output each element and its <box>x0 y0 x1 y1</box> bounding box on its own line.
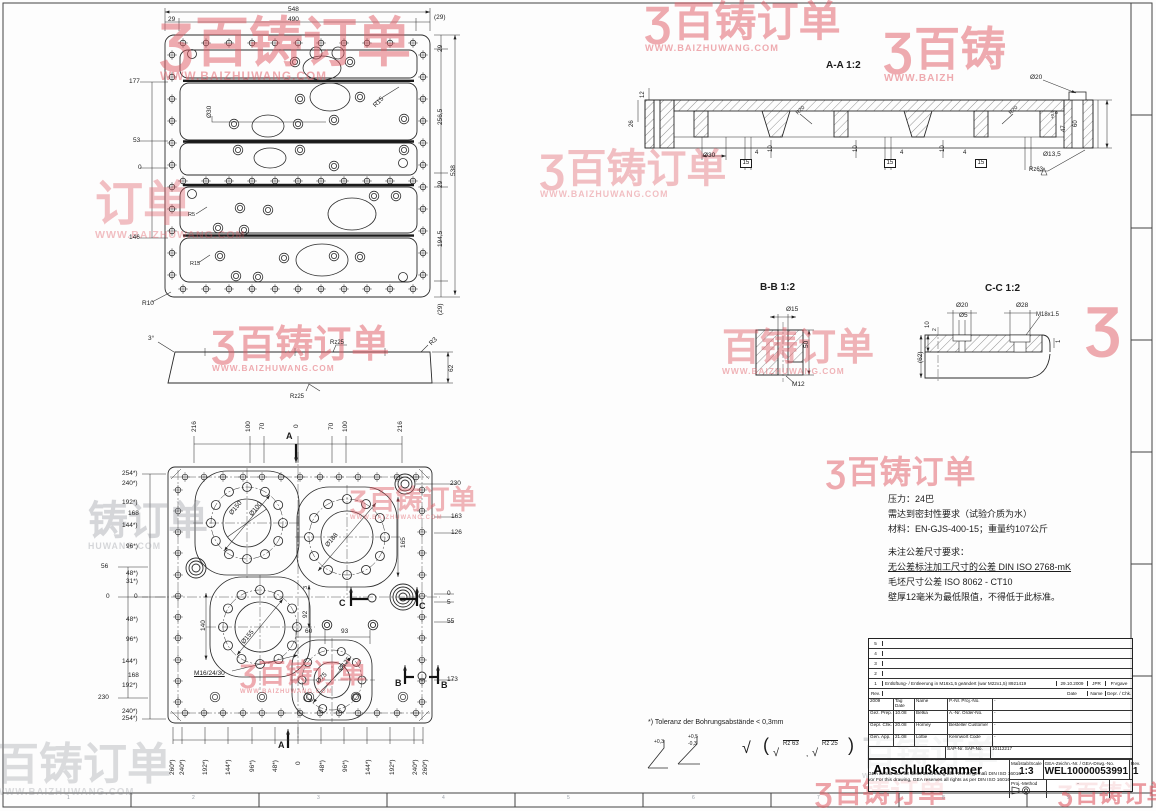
info-prep-label: Gez. Prep. <box>869 711 894 722</box>
rev-header-no: Rev. <box>869 691 883 696</box>
info-year: 2009 <box>869 699 894 710</box>
bottom-view <box>118 436 456 748</box>
rev-no: 3 <box>869 661 883 666</box>
side-view <box>158 342 453 391</box>
info-proj-no-value: - <box>993 699 1132 710</box>
info-tag: Tag Date <box>894 699 915 710</box>
info-app-date: 21.08 <box>894 735 915 746</box>
rev-header-date: Date <box>1057 691 1088 696</box>
rev-header-chk: Gepr. / Chk. <box>1106 691 1132 696</box>
info-sap-label: SAP-Nr. SAP-No. <box>946 747 991 758</box>
rev-no: 5 <box>869 641 883 646</box>
info-row: Gen. App. 21.08 Lottie Kennwort Code - <box>869 735 1132 747</box>
revision-row: 5 <box>869 639 1132 649</box>
title-block: 5 4 3 2 1 Entlüftung- / Entleerung in M1… <box>868 638 1133 792</box>
info-code-label: Kennwort Code <box>948 735 993 746</box>
info-order-no-label: A.-Nr. Order-No. <box>948 711 993 722</box>
info-row: 2009 Tag Date Name P.-Nr. Proj.-No. - <box>869 699 1132 711</box>
info-row-sap: SAP-Nr. SAP-No. 10112217 <box>869 747 1132 759</box>
info-sap-value: 10112217 <box>991 747 1132 758</box>
info-chk-label: Gepr. Chk. <box>869 723 894 734</box>
info-customer-value: - <box>993 723 1132 734</box>
info-customer-label: Besteller Customer <box>948 723 993 734</box>
info-name-header: Name <box>915 699 948 710</box>
drawing-sheet: Ʒ百铸订单WWW.BAIZHUWANG.COMƷ百铸订单WWW.BAIZHUWA… <box>0 0 1156 811</box>
revision-row: 4 <box>869 649 1132 659</box>
finish-symbols <box>648 736 700 768</box>
top-view <box>140 8 460 302</box>
info-row: Gez. Prep. 10.08 Betka A.-Nr. Order-No. … <box>869 711 1132 723</box>
rev-name: JPR <box>1088 681 1106 686</box>
revision-row: 2 <box>869 669 1132 679</box>
info-chk-name: Horney <box>915 723 948 734</box>
rev-chk: P.Vgave <box>1106 681 1132 686</box>
info-chk-date: 20.08 <box>894 723 915 734</box>
info-row: Gepr. Chk. 20.08 Horney Besteller Custom… <box>869 723 1132 735</box>
spacer <box>869 747 893 758</box>
rev-date: 29.10.2009 <box>1057 681 1088 686</box>
spacer <box>893 747 913 758</box>
info-app-label: Gen. App. <box>869 735 894 746</box>
copyright-note: GEA behält sich für diese Zeichnung alle… <box>868 770 1131 784</box>
bb-section <box>756 314 814 383</box>
cc-section <box>921 310 1054 382</box>
rev-no: 4 <box>869 651 883 656</box>
spacer <box>913 747 946 758</box>
info-code-value: - <box>993 735 1132 746</box>
rev-desc: Entlüftung- / Entleerung in M16x1,5 geän… <box>883 681 1057 686</box>
info-prep-date: 10.08 <box>894 711 915 722</box>
projection-symbol-icon <box>1011 791 1033 796</box>
info-order-no-value: - <box>993 711 1132 722</box>
rev-header-name: Name <box>1088 691 1106 696</box>
revision-header-row: Rev. Date Name Gepr. / Chk. <box>869 689 1132 699</box>
rev-no: 1 <box>869 681 883 686</box>
info-proj-no-label: P.-Nr. Proj.-No. <box>948 699 993 710</box>
copyright-en: vor For this drawing, GEA reserves all r… <box>868 778 1131 784</box>
revision-row-1: 1 Entlüftung- / Entleerung in M16x1,5 ge… <box>869 679 1132 689</box>
info-prep-name: Betka <box>915 711 948 722</box>
info-app-name: Lottie <box>915 735 948 746</box>
rev-value: 1 <box>1131 766 1140 777</box>
aa-section <box>638 80 1112 175</box>
rev-no: 2 <box>869 671 883 676</box>
revision-row: 3 <box>869 659 1132 669</box>
